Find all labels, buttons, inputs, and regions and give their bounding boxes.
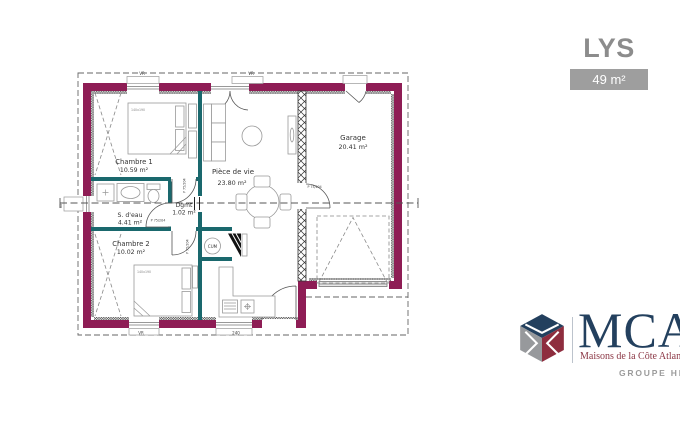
area-label-chambre2: 10.02 m²	[117, 249, 146, 256]
chair	[254, 217, 270, 228]
shutter-box-chambre2	[129, 329, 159, 336]
page-title: LYS	[570, 33, 648, 63]
furniture	[95, 93, 389, 317]
sofa-back	[204, 104, 212, 161]
chair	[236, 194, 247, 210]
livingroom-furniture	[204, 104, 297, 228]
garage-door-swing	[317, 216, 389, 283]
sofa	[212, 142, 226, 161]
shutter-box-livingroom	[232, 77, 263, 84]
shutter-label-bottom1: VR	[138, 331, 144, 336]
room-label-livingroom: Pièce de vie	[212, 168, 254, 176]
coffee-table	[242, 126, 262, 146]
area-label-chambre1: 10.59 m²	[120, 167, 149, 174]
room-label-bathroom: S. d'eau	[117, 212, 142, 219]
toilet-tank	[147, 184, 160, 190]
entrance-opening	[262, 319, 296, 329]
window-chambre1	[127, 83, 159, 95]
window-label-bathroom: 60	[59, 204, 63, 208]
room-label-chambre1: Chambre 1	[115, 158, 152, 166]
chair	[280, 194, 291, 210]
room-label-garage: Garage	[340, 134, 366, 142]
bed-size-label-chambre1: 140x190	[131, 108, 145, 112]
bathroom-fixtures	[97, 184, 160, 203]
area-label-bathroom: 4.41 m²	[118, 220, 143, 227]
area-label-livingroom: 23.80 m²	[217, 179, 247, 187]
bathroom-window-box	[64, 197, 83, 211]
area-label-hallway: 1.02 m²	[172, 210, 196, 217]
shutter-label-top1: VR	[139, 71, 145, 76]
bed-size-label-chambre2: 140x190	[137, 270, 151, 274]
water-heater-label: CUM	[208, 244, 218, 249]
window-bathroom	[82, 196, 95, 212]
area-label-garage: 20.41 m²	[338, 143, 368, 151]
garage-door-step	[343, 76, 367, 84]
shutter-label-top2: VR	[248, 71, 254, 76]
door-size-label-garage: P 75/204	[308, 185, 322, 189]
door-chambre2	[172, 231, 196, 255]
room-label-hallway: Dgmt	[176, 202, 193, 209]
room-label-chambre2: Chambre 2	[112, 240, 149, 248]
shutter-box-chambre1	[127, 77, 159, 84]
door-size-label-bathroom: P 75/204	[151, 219, 166, 223]
door-bathroom	[146, 203, 170, 227]
kitchen	[219, 267, 275, 317]
door-size-label-chambre2: P 75/204	[186, 239, 190, 254]
door-size-label-chambre1: P 75/204	[183, 178, 187, 193]
page: Chambre 1 10.59 m² S. d'eau 4.41 m² Cham…	[0, 0, 680, 425]
toilet	[148, 190, 159, 203]
chair	[254, 176, 270, 187]
garage-partition-wall	[297, 91, 307, 281]
washbasin	[121, 187, 140, 199]
dining-table	[245, 185, 279, 219]
title-block: LYS 49 m²	[570, 33, 648, 90]
tv	[290, 128, 294, 142]
area-badge: 49 m²	[570, 69, 648, 90]
kitchen-drainer	[223, 300, 238, 313]
technical-shaft	[228, 234, 247, 258]
window-label-kitchen: 240	[232, 331, 240, 336]
